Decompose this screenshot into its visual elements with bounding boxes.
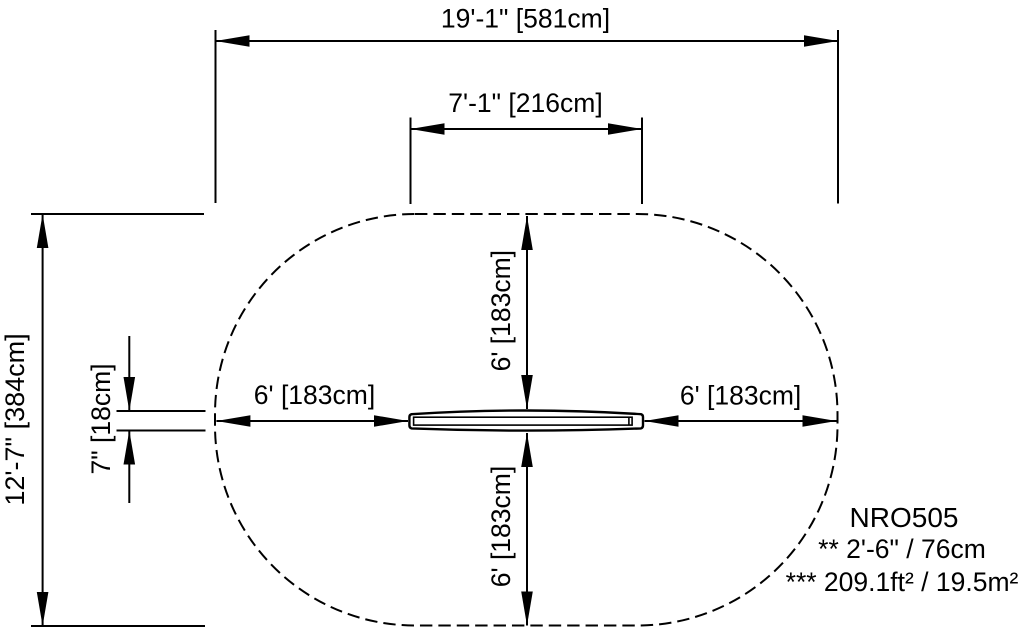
svg-text:12'-7" [384cm]: 12'-7" [384cm] [0, 333, 30, 505]
svg-text:6' [183cm]: 6' [183cm] [680, 381, 801, 411]
svg-text:6' [183cm]: 6' [183cm] [486, 250, 516, 371]
svg-text:7'-1" [216cm]: 7'-1" [216cm] [448, 88, 602, 118]
svg-text:19'-1" [581cm]: 19'-1" [581cm] [441, 4, 610, 34]
svg-text:6' [183cm]: 6' [183cm] [486, 466, 516, 587]
svg-text:6' [183cm]: 6' [183cm] [254, 380, 375, 410]
svg-text:** 2'-6" / 76cm: ** 2'-6" / 76cm [818, 534, 986, 564]
svg-text:NRO505: NRO505 [850, 502, 959, 533]
svg-text:*** 209.1ft² / 19.5m²: *** 209.1ft² / 19.5m² [786, 567, 1019, 597]
svg-text:7" [18cm]: 7" [18cm] [86, 363, 116, 474]
